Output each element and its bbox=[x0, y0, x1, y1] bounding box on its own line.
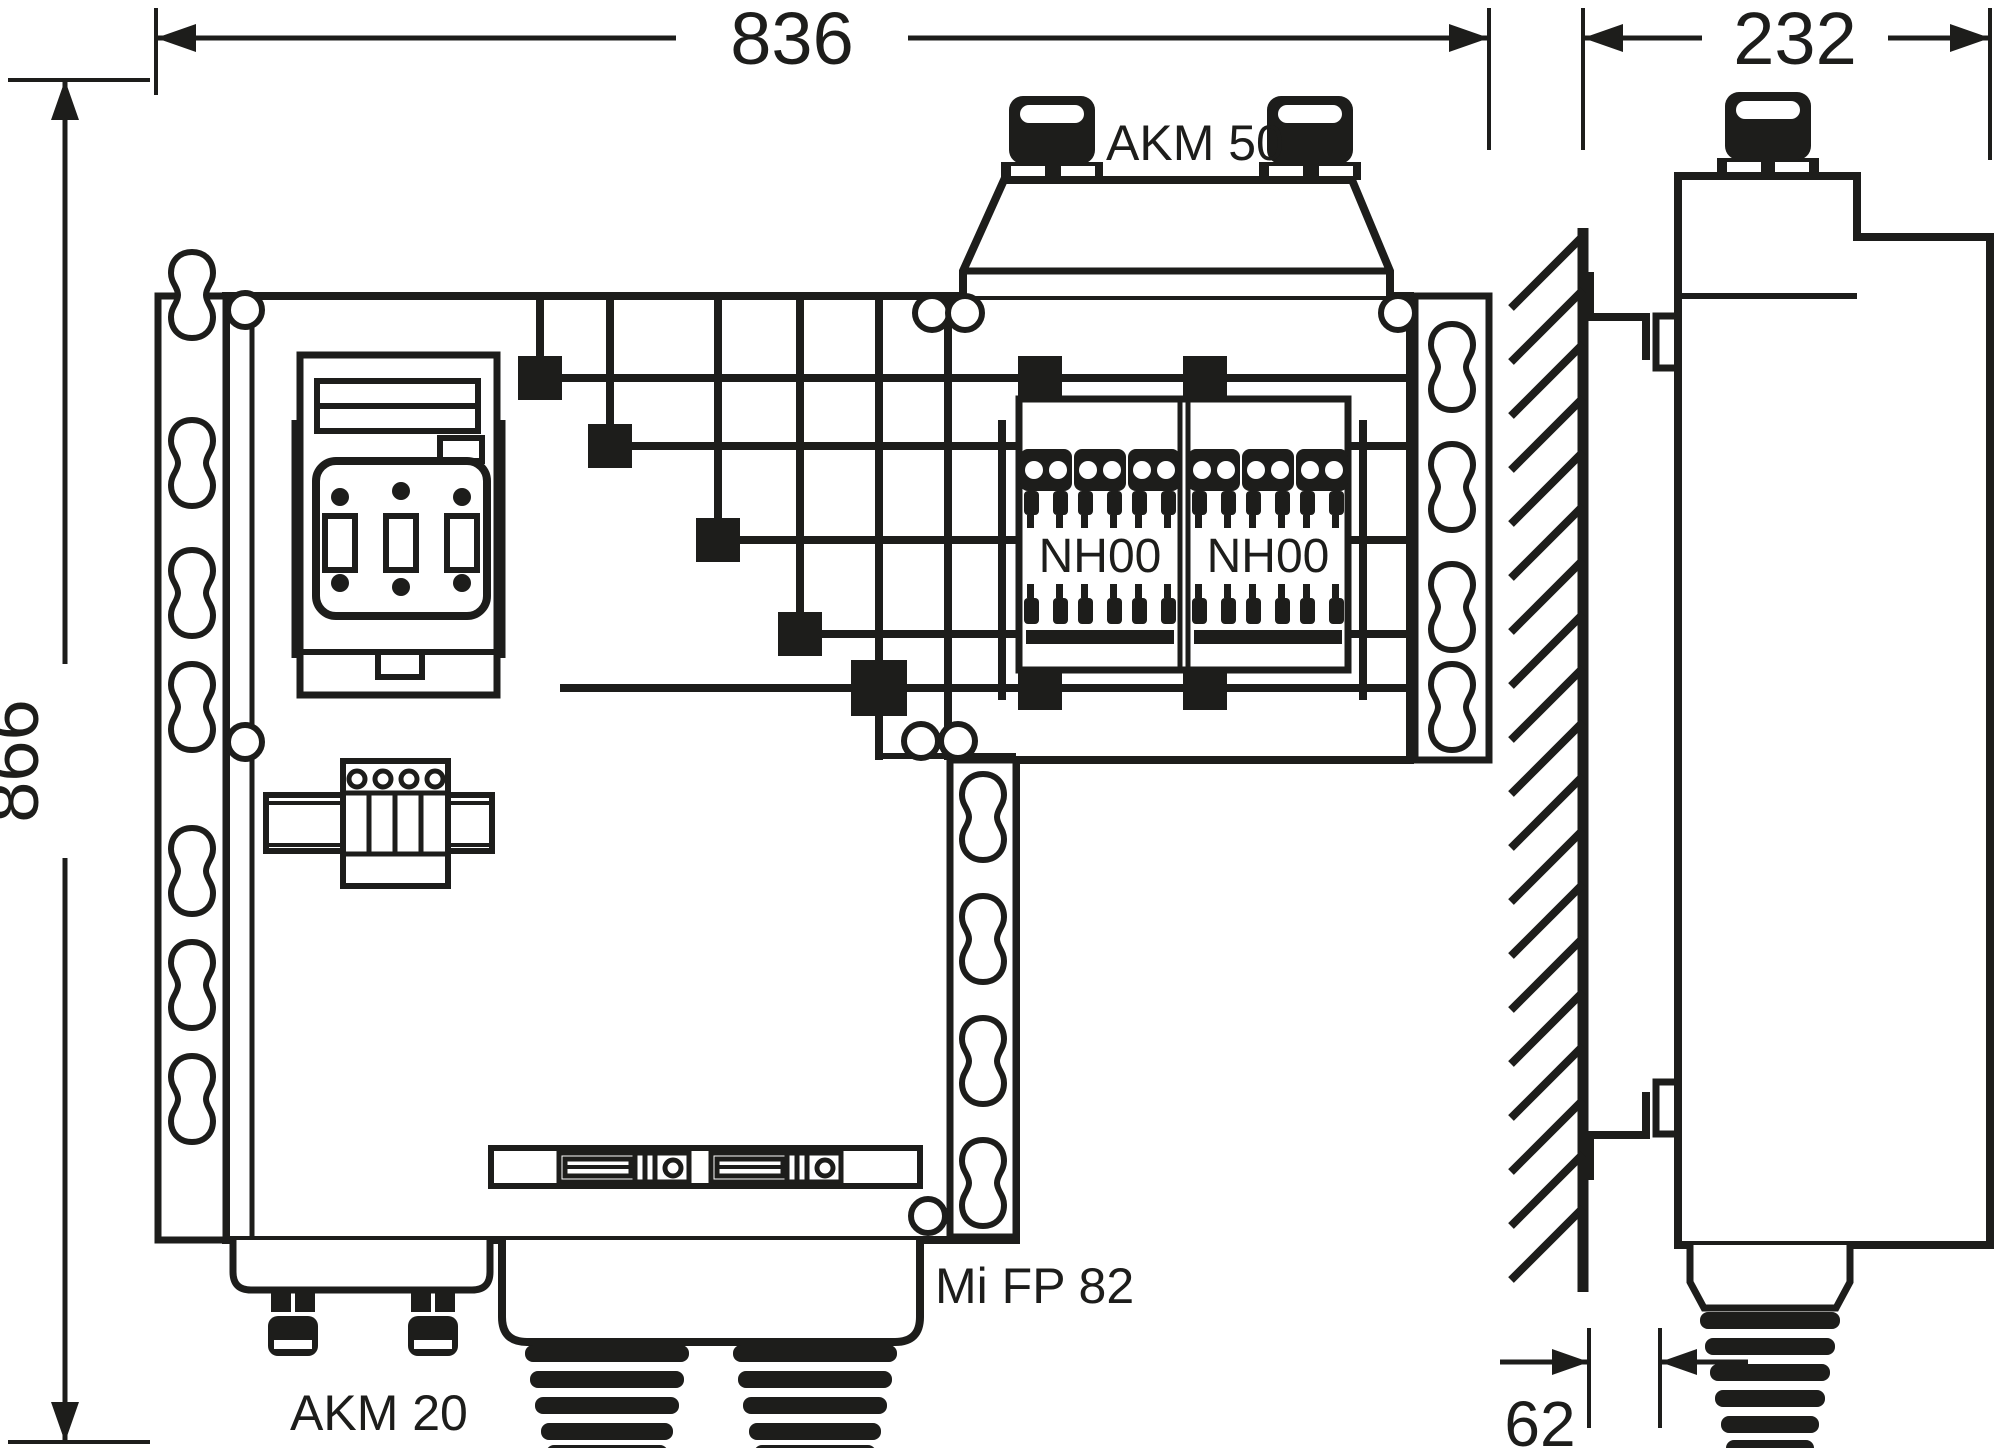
akm50-gland-side bbox=[1717, 92, 1819, 176]
busbar-clamp bbox=[588, 424, 632, 468]
mounting-strip-right-upper bbox=[1415, 296, 1489, 760]
cable-clamp-rail bbox=[491, 1148, 920, 1186]
fuse-switch-disconnector bbox=[294, 355, 503, 695]
model-label: Mi FP 82 bbox=[935, 1258, 1134, 1314]
mounting-strip-left bbox=[158, 252, 226, 1240]
nh00-label-right: NH00 bbox=[1207, 530, 1330, 583]
cable-spout-side bbox=[1690, 1245, 1850, 1448]
akm20-flange: AKM 20 bbox=[233, 1240, 490, 1441]
akm50-gland-left bbox=[1001, 96, 1103, 180]
dim-front-width-value: 836 bbox=[730, 0, 853, 80]
busbar-clamp bbox=[696, 518, 740, 562]
dim-side-depth-value: 232 bbox=[1733, 0, 1856, 80]
akm20-label: AKM 20 bbox=[290, 1385, 468, 1441]
cable-spout-right bbox=[733, 1345, 897, 1448]
akm20-gland-left bbox=[268, 1290, 318, 1356]
enclosure-profile bbox=[1678, 176, 1990, 1245]
busbar-clamp bbox=[1183, 356, 1227, 400]
wall-hatch bbox=[1511, 228, 1583, 1292]
busbar-clamp bbox=[518, 356, 562, 400]
akm20-gland-right bbox=[408, 1290, 458, 1356]
dim-front-height-value: 866 bbox=[0, 699, 54, 822]
wall-bracket-bottom bbox=[1583, 1082, 1678, 1180]
dim-front-height: 866 bbox=[0, 80, 150, 1442]
fuse-hood bbox=[963, 180, 1390, 296]
cable-spout-left bbox=[525, 1345, 689, 1448]
side-view bbox=[1511, 92, 1990, 1448]
dim-wall-offset-value: 62 bbox=[1504, 1388, 1575, 1448]
front-view: AKM 50 NH00 NH00 bbox=[158, 96, 1489, 1448]
cable-spout-flange bbox=[502, 1240, 920, 1448]
busbar-clamp bbox=[778, 612, 822, 656]
busbar-clamp-large bbox=[851, 660, 907, 716]
wall-bracket-top bbox=[1583, 272, 1678, 368]
nh00-fuse-bank: NH00 NH00 bbox=[1019, 399, 1348, 670]
busbar-clamp bbox=[1018, 356, 1062, 400]
akm50-label: AKM 50 bbox=[1106, 115, 1284, 171]
technical-drawing-page: 836 232 866 62 bbox=[0, 0, 2000, 1448]
mounting-strip-right-lower bbox=[950, 760, 1016, 1237]
nh00-label-left: NH00 bbox=[1039, 530, 1162, 583]
enclosure-dimension-drawing: 836 232 866 62 bbox=[0, 0, 2000, 1448]
